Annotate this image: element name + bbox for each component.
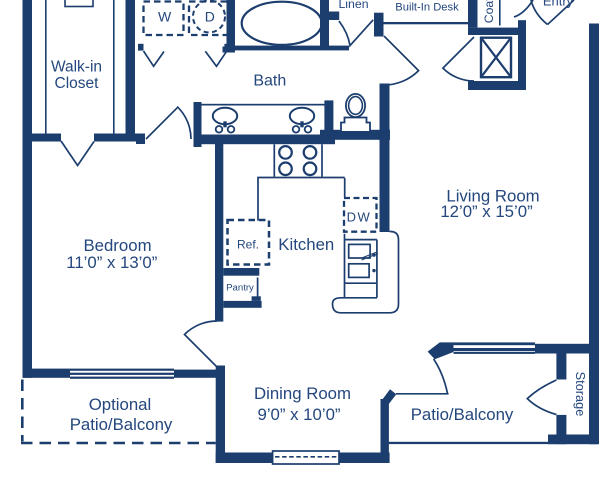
svg-text:Closet: Closet [55,75,100,92]
svg-text:Pantry: Pantry [226,283,254,294]
svg-text:Storage: Storage [573,372,588,417]
svg-text:Ref.: Ref. [237,238,259,252]
svg-text:DW: DW [347,210,372,225]
svg-text:Kitchen: Kitchen [278,235,334,254]
svg-text:Walk-in: Walk-in [51,59,102,76]
svg-text:Built-In Desk: Built-In Desk [395,2,459,14]
svg-text:11’0” x 13’0”: 11’0” x 13’0” [66,253,157,272]
svg-text:Patio/Balcony: Patio/Balcony [70,415,173,434]
svg-text:Patio/Balcony: Patio/Balcony [411,405,514,424]
svg-text:Entry: Entry [543,0,574,9]
svg-text:Dining Room: Dining Room [254,384,351,403]
svg-text:W: W [158,8,172,24]
svg-text:Coat: Coat [482,0,496,23]
svg-text:Linen: Linen [338,0,368,11]
svg-text:Bath: Bath [253,73,286,90]
svg-text:9’0” x 10’0”: 9’0” x 10’0” [257,405,340,424]
svg-text:D: D [205,8,215,24]
svg-text:12’0” x 15’0”: 12’0” x 15’0” [440,202,532,221]
svg-text:Optional: Optional [89,395,152,414]
